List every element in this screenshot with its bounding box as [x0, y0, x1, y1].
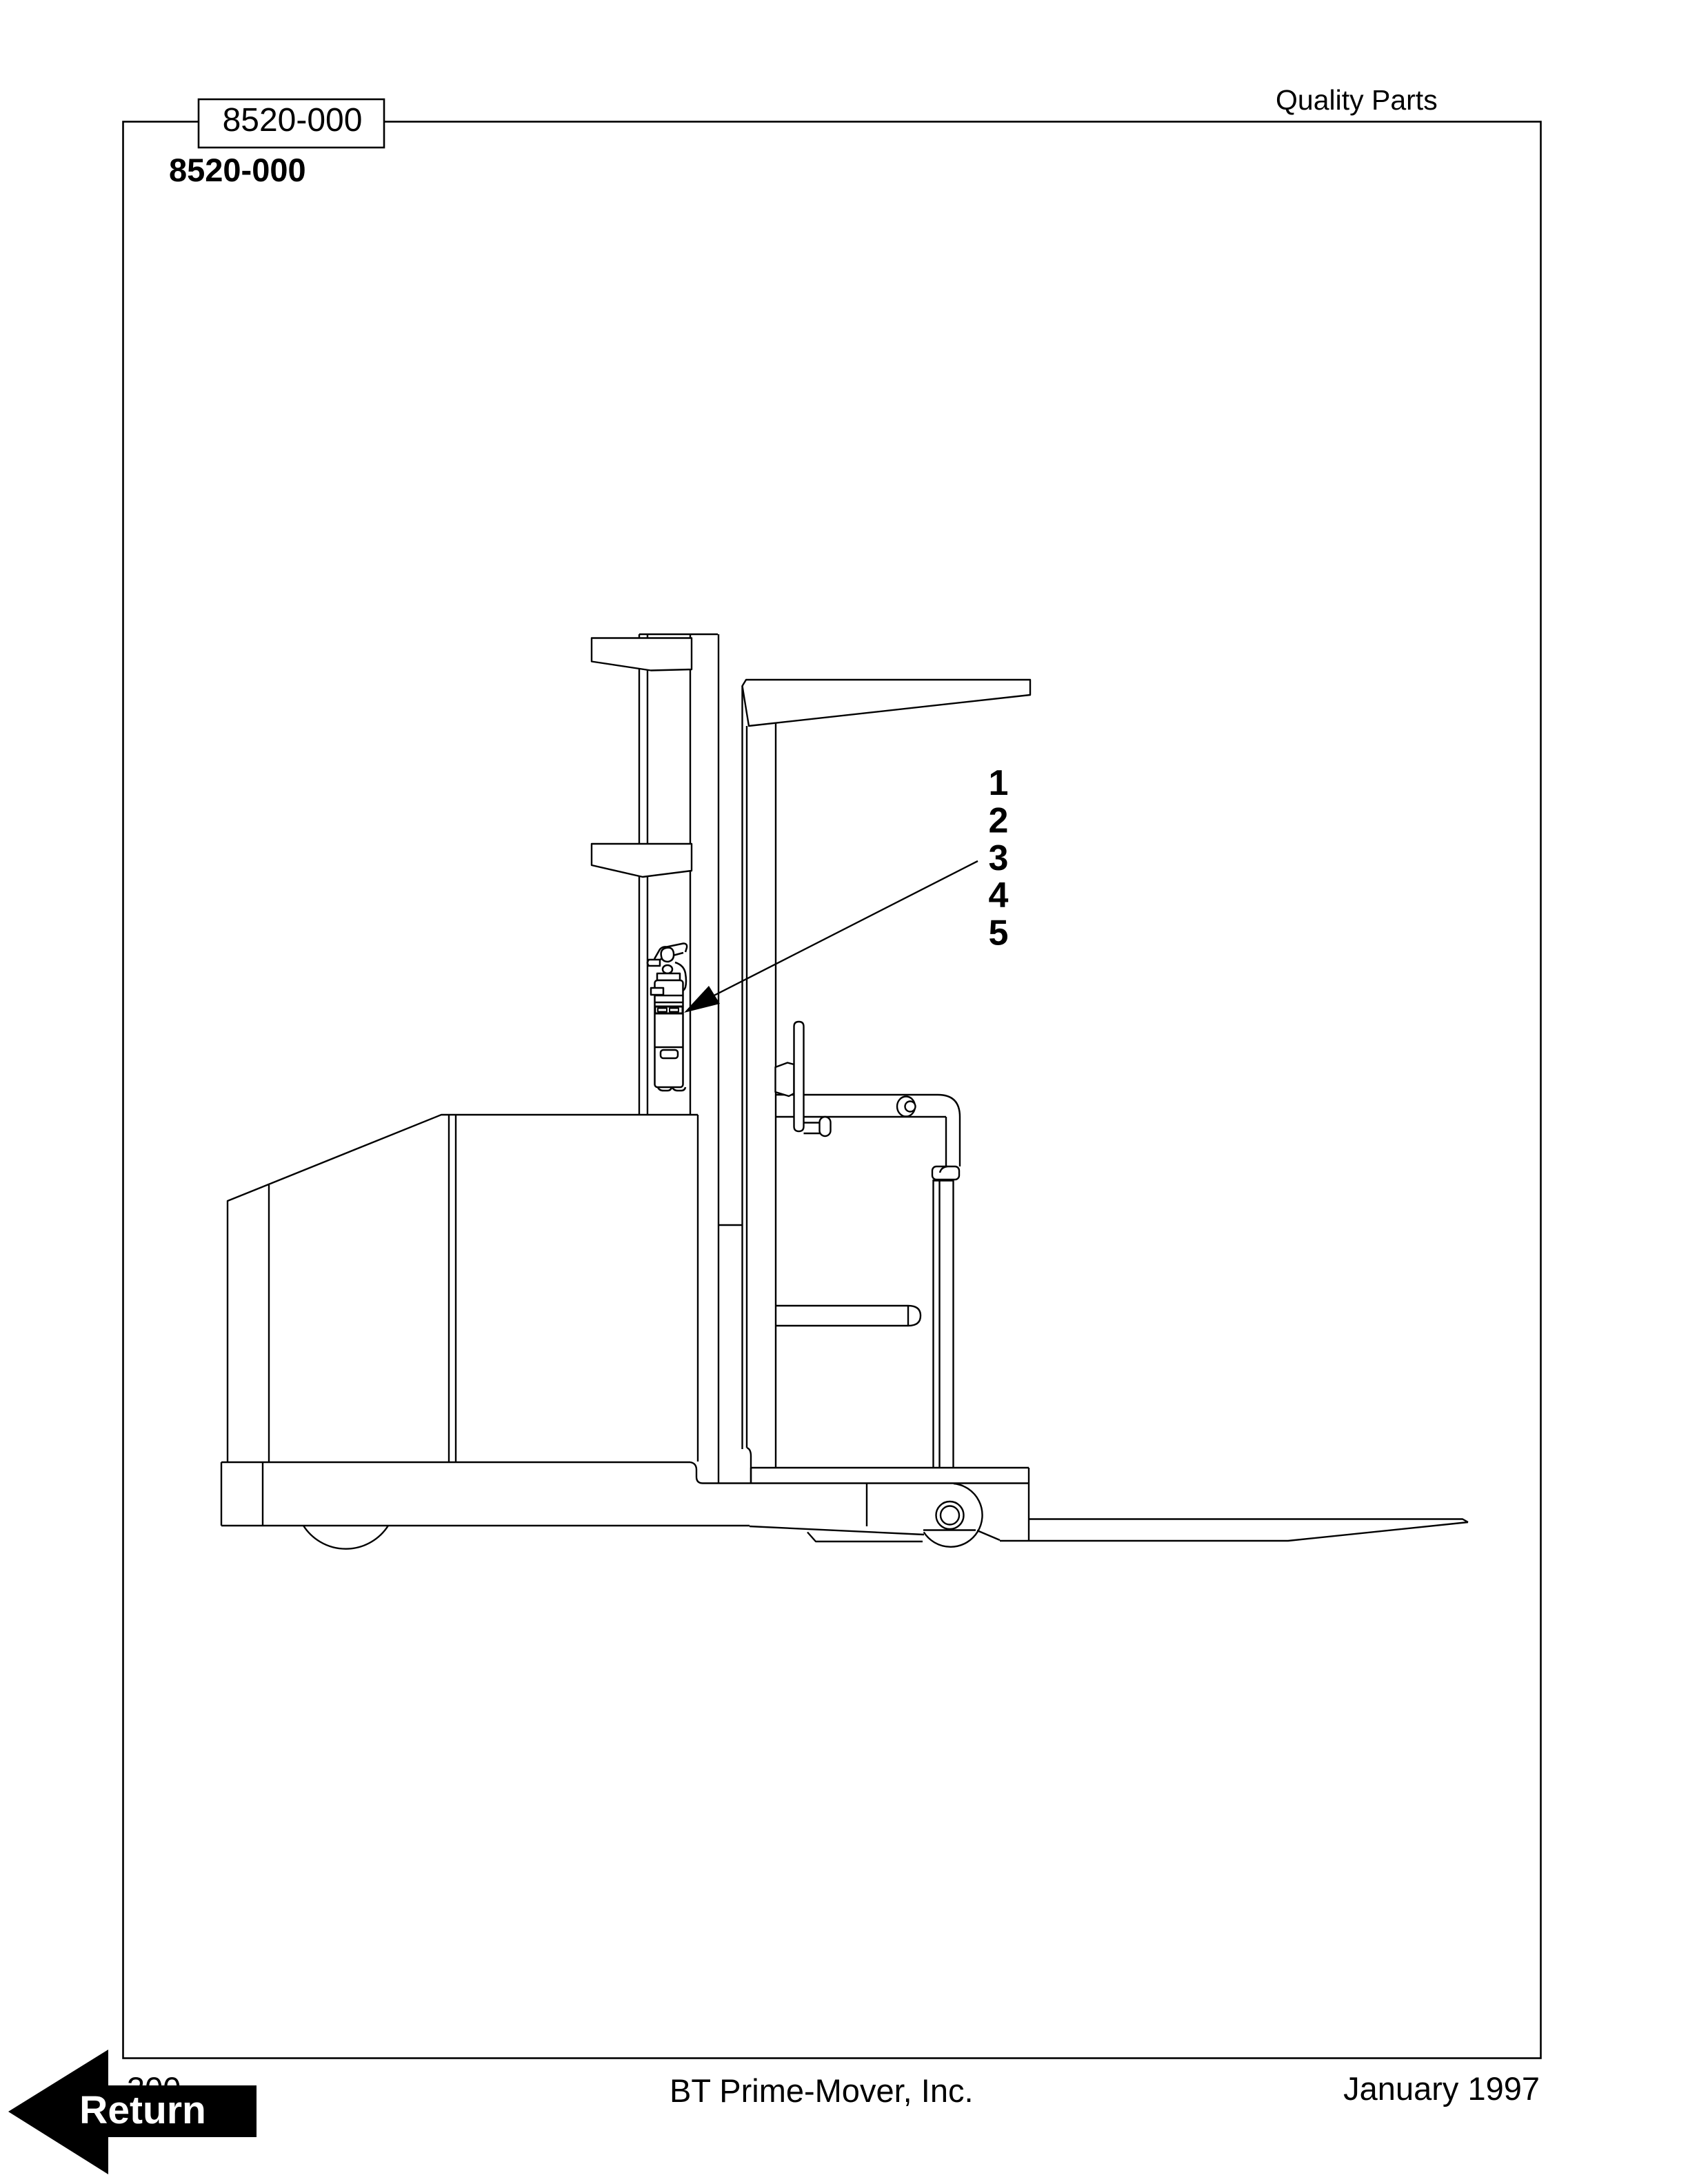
svg-text:3: 3	[989, 838, 1009, 878]
svg-text:4: 4	[989, 876, 1009, 916]
svg-text:BT Prime-Mover, Inc.: BT Prime-Mover, Inc.	[670, 2072, 974, 2109]
svg-text:1: 1	[989, 763, 1009, 803]
svg-text:January 1997: January 1997	[1343, 2070, 1540, 2107]
svg-text:Quality Parts: Quality Parts	[1276, 84, 1438, 116]
svg-text:Return: Return	[79, 2088, 206, 2132]
svg-text:2: 2	[989, 801, 1009, 841]
svg-text:5: 5	[989, 913, 1009, 953]
svg-text:8520-000: 8520-000	[223, 102, 363, 139]
svg-text:8520-000: 8520-000	[169, 152, 306, 188]
